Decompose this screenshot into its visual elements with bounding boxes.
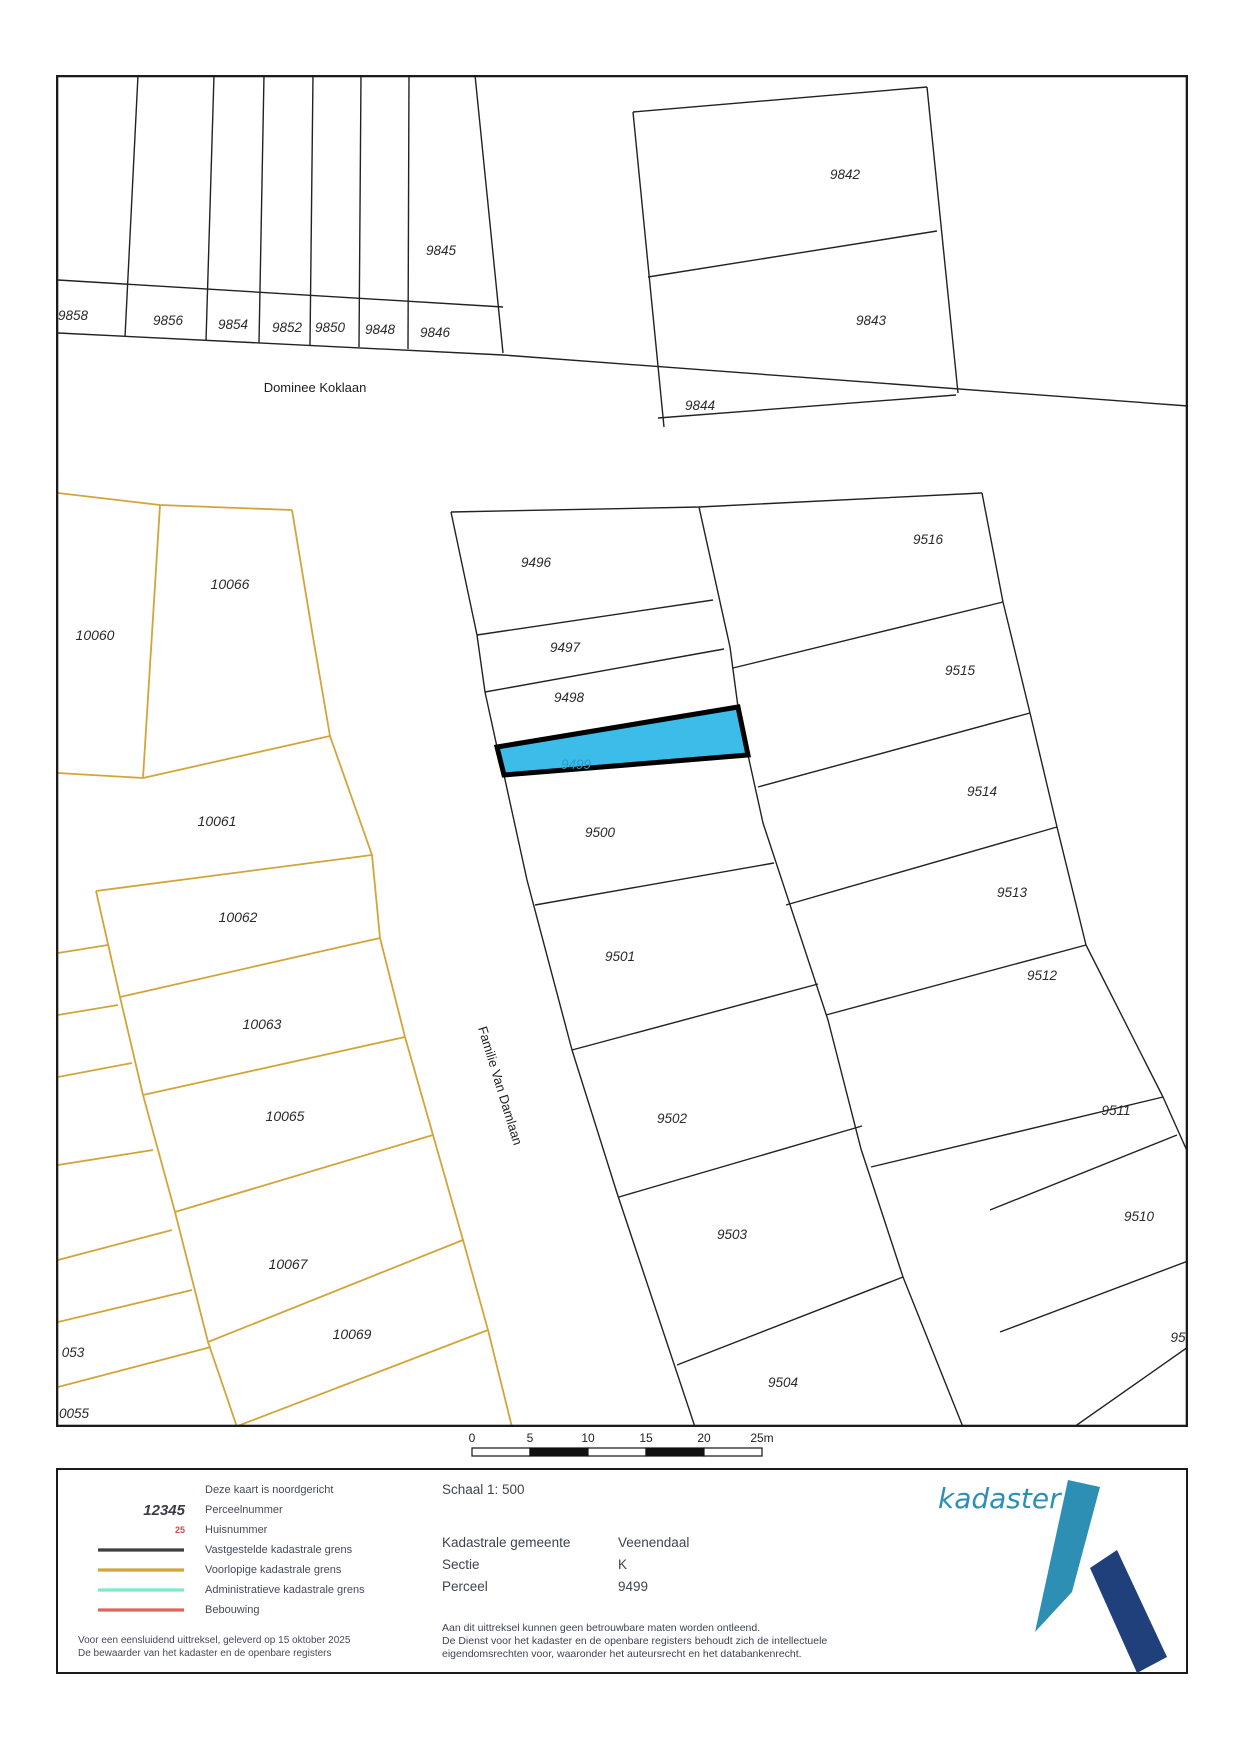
parcel-label-9516: 9516 (913, 532, 944, 547)
parcel-label-9511: 9511 (1101, 1103, 1130, 1118)
legend-established-label: Vastgestelde kadastrale grens (205, 1544, 352, 1556)
parcel-label-10067: 10067 (269, 1256, 309, 1272)
detail-row-sectie: Sectie K (442, 1554, 827, 1576)
perceel-value: 9499 (618, 1576, 648, 1598)
legend-footnote-2: De bewaarder van het kadaster en de open… (78, 1647, 438, 1660)
legend-row-provisional-boundary: Voorlopige kadastrale grens (78, 1560, 438, 1580)
detail-row-perceel: Perceel 9499 (442, 1576, 827, 1598)
legend: Deze kaart is noordgericht 12345 Perceel… (78, 1480, 438, 1660)
parcel-number-sample: 12345 (143, 1502, 185, 1519)
parcel-label-10061: 10061 (198, 813, 237, 829)
street-label-dominee-koklaan: Dominee Koklaan (264, 380, 367, 395)
parcel-label-9842: 9842 (830, 167, 861, 182)
administrative-boundary-swatch (97, 1587, 185, 1593)
legend-housenumber-label: Huisnummer (205, 1524, 267, 1536)
sectie-value: K (618, 1554, 627, 1576)
highlighted-parcel-9499 (497, 707, 748, 775)
parcel-labels: 9858 9856 9854 9852 9850 9848 9846 9845 … (58, 167, 1186, 1421)
parcel-label-9500: 9500 (585, 825, 616, 840)
parcel-label-10065: 10065 (266, 1108, 305, 1124)
parcel-label-9496: 9496 (521, 555, 552, 570)
parcel-label-9846: 9846 (420, 325, 451, 340)
parcel-label-9512: 9512 (1027, 968, 1058, 983)
parcel-label-0055-partial: 0055 (59, 1406, 90, 1421)
parcel-label-9504: 9504 (768, 1375, 798, 1390)
legend-row-established-boundary: Vastgestelde kadastrale grens (78, 1540, 438, 1560)
scale-bar: 0 5 10 15 20 25m (440, 1428, 800, 1462)
legend-row-buildings: Bebouwing (78, 1600, 438, 1620)
parcel-label-9498: 9498 (554, 690, 585, 705)
scale-bar-segments (472, 1448, 762, 1456)
legend-row-housenumber: 25 Huisnummer (78, 1520, 438, 1540)
parcel-label-9850: 9850 (315, 320, 346, 335)
parcel-label-9843: 9843 (856, 313, 887, 328)
disclaimer-line-1: Aan dit uittreksel kunnen geen betrouwba… (442, 1622, 827, 1635)
provisional-boundaries (58, 493, 512, 1427)
gemeente-value: Veenendaal (618, 1532, 689, 1554)
parcel-label-10063: 10063 (243, 1016, 282, 1032)
sectie-label: Sectie (442, 1554, 618, 1576)
parcel-label-053-partial: 053 (62, 1345, 85, 1360)
parcel-label-9501: 9501 (605, 949, 635, 964)
legend-row-administrative-boundary: Administratieve kadastrale grens (78, 1580, 438, 1600)
parcel-label-9856: 9856 (153, 313, 184, 328)
parcel-label-9858: 9858 (58, 308, 89, 323)
parcel-label-9854: 9854 (218, 317, 248, 332)
kadaster-logo-navy-stroke (1090, 1550, 1167, 1673)
kadaster-logo-teal-stroke (1035, 1480, 1100, 1632)
parcel-label-10060: 10060 (76, 627, 115, 643)
parcel-label-9513: 9513 (997, 885, 1028, 900)
established-boundary-swatch (97, 1547, 185, 1553)
parcel-label-9510: 9510 (1124, 1209, 1155, 1224)
detail-row-gemeente: Kadastrale gemeente Veenendaal (442, 1532, 827, 1554)
legend-north-note: Deze kaart is noordgericht (205, 1484, 333, 1496)
legend-row-parcelnumber: 12345 Perceelnummer (78, 1500, 438, 1520)
buildings-swatch (97, 1607, 185, 1613)
house-number-sample: 25 (175, 1525, 185, 1535)
disclaimer-line-3: eigendomsrechten voor, waaronder het aut… (442, 1648, 827, 1661)
provisional-boundary-swatch (97, 1567, 185, 1573)
legend-parcelnumber-label: Perceelnummer (205, 1504, 283, 1516)
gemeente-label: Kadastrale gemeente (442, 1532, 618, 1554)
scale-tick-10: 10 (581, 1431, 595, 1445)
scale-tick-20: 20 (697, 1431, 711, 1445)
parcel-label-9515: 9515 (945, 663, 976, 678)
legend-buildings-label: Bebouwing (205, 1604, 259, 1616)
scale-tick-5: 5 (527, 1431, 534, 1445)
perceel-label: Perceel (442, 1576, 618, 1598)
parcel-label-9844: 9844 (685, 398, 715, 413)
parcel-label-10069: 10069 (333, 1326, 372, 1342)
cadastral-map: 9858 9856 9854 9852 9850 9848 9846 9845 … (56, 75, 1188, 1427)
scale-tick-25m: 25m (750, 1431, 773, 1445)
legend-provisional-label: Voorlopige kadastrale grens (205, 1564, 341, 1576)
legend-row-north: Deze kaart is noordgericht (78, 1480, 438, 1500)
scale-tick-15: 15 (639, 1431, 653, 1445)
legend-administrative-label: Administratieve kadastrale grens (205, 1584, 365, 1596)
parcel-label-9852: 9852 (272, 320, 303, 335)
parcel-label-95-partial: 95 (1170, 1330, 1186, 1345)
parcel-label-9848: 9848 (365, 322, 396, 337)
parcel-label-10066: 10066 (211, 576, 250, 592)
disclaimer-line-2: De Dienst voor het kadaster en de openba… (442, 1635, 827, 1648)
parcel-label-9497: 9497 (550, 640, 581, 655)
footer-panel: Deze kaart is noordgericht 12345 Perceel… (56, 1468, 1188, 1674)
parcel-label-9503: 9503 (717, 1227, 748, 1242)
legend-footnote-1: Voor een eensluidend uittreksel, gelever… (78, 1634, 438, 1647)
extract-details: Schaal 1: 500 Kadastrale gemeente Veenen… (442, 1482, 827, 1661)
parcel-label-9845: 9845 (426, 243, 457, 258)
scale-text: Schaal 1: 500 (442, 1482, 827, 1497)
parcel-label-10062: 10062 (219, 909, 258, 925)
parcel-label-9514: 9514 (967, 784, 997, 799)
kadaster-logo-mark (1030, 1475, 1175, 1675)
street-label-familie-van-damlaan: Familie Van Damlaan (475, 1025, 525, 1147)
parcel-label-9499: 9499 (561, 757, 592, 772)
parcel-label-9502: 9502 (657, 1111, 688, 1126)
scale-tick-0: 0 (469, 1431, 476, 1445)
